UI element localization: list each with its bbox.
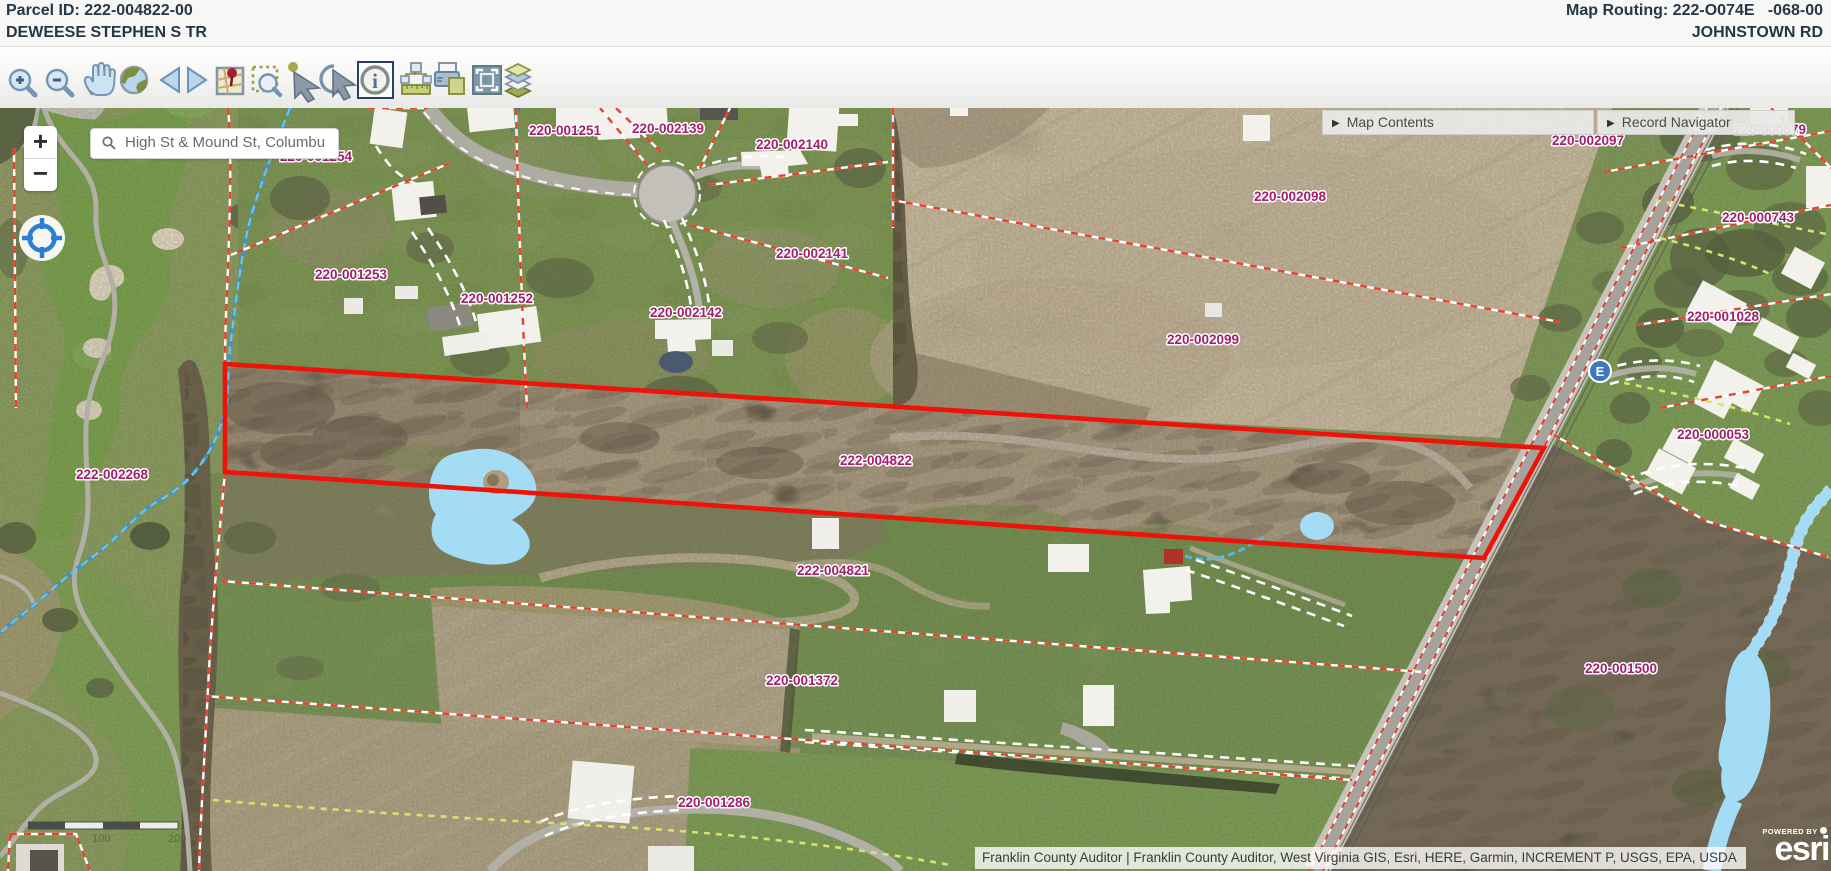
svg-text:220-002098: 220-002098 (1254, 189, 1327, 204)
svg-text:220-001253: 220-001253 (315, 267, 388, 282)
svg-text:220-002141: 220-002141 (776, 246, 849, 261)
svg-text:220-002142: 220-002142 (650, 305, 722, 320)
svg-text:220-002139: 220-002139 (632, 121, 704, 136)
svg-text:220-001251: 220-001251 (529, 123, 602, 138)
svg-text:220-000053: 220-000053 (1677, 427, 1750, 442)
svg-text:220-001286: 220-001286 (678, 795, 751, 810)
svg-text:100: 100 (92, 833, 110, 845)
svg-text:220-002140: 220-002140 (756, 137, 828, 152)
svg-text:E: E (1596, 364, 1605, 379)
svg-text:220-001028: 220-001028 (1687, 309, 1760, 324)
svg-text:220-002099: 220-002099 (1167, 332, 1239, 347)
svg-text:220-001252: 220-001252 (461, 291, 533, 306)
svg-text:220-001372: 220-001372 (766, 673, 838, 688)
svg-text:222-002268: 222-002268 (76, 467, 149, 482)
svg-text:220-002097: 220-002097 (1552, 133, 1624, 148)
svg-text:222-004822: 222-004822 (840, 453, 912, 468)
svg-text:222-004821: 222-004821 (797, 563, 870, 578)
svg-text:220-000743: 220-000743 (1722, 210, 1795, 225)
svg-text:220-001500: 220-001500 (1585, 661, 1657, 676)
svg-text:i: i (372, 69, 378, 93)
svg-text:200: 200 (168, 833, 186, 845)
